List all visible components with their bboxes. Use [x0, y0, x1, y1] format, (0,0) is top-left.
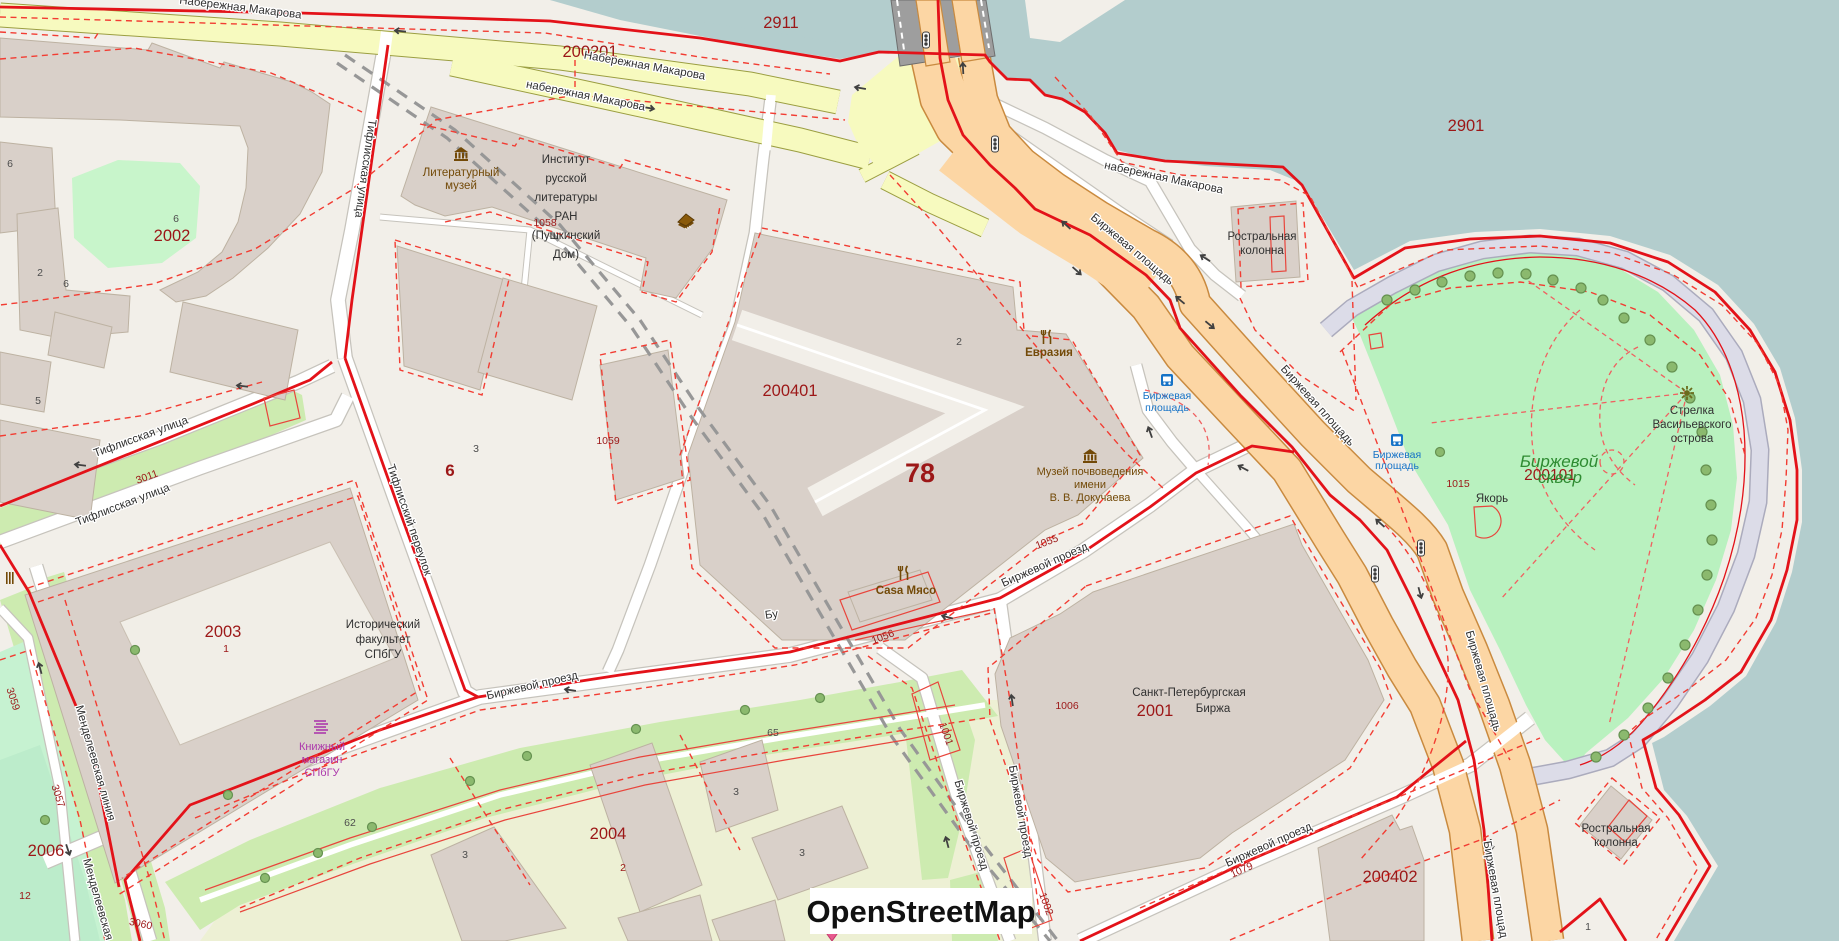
- svg-text:1006: 1006: [1055, 700, 1079, 712]
- svg-text:6: 6: [173, 213, 179, 225]
- svg-text:СПбГУ: СПбГУ: [365, 649, 402, 661]
- svg-text:2: 2: [620, 862, 626, 874]
- svg-text:1059: 1059: [596, 435, 620, 447]
- svg-text:2: 2: [37, 267, 43, 279]
- svg-text:3: 3: [733, 786, 739, 798]
- svg-text:65: 65: [767, 727, 779, 739]
- svg-text:6: 6: [7, 158, 13, 170]
- svg-text:3: 3: [799, 847, 805, 859]
- svg-text:(Пушкинский: (Пушкинский: [532, 230, 601, 242]
- svg-text:литературы: литературы: [535, 192, 598, 204]
- svg-text:В. В. Докучаева: В. В. Докучаева: [1050, 492, 1132, 504]
- svg-text:2911: 2911: [763, 14, 798, 32]
- svg-text:факультет: факультет: [356, 634, 411, 646]
- svg-text:Литературный: Литературный: [423, 167, 500, 179]
- svg-text:Бу: Бу: [764, 608, 779, 622]
- svg-text:имени: имени: [1074, 479, 1106, 491]
- svg-text:2003: 2003: [205, 623, 242, 641]
- svg-text:Евразия: Евразия: [1025, 347, 1073, 359]
- svg-text:2001: 2001: [1137, 702, 1174, 720]
- svg-text:Ростральная: Ростральная: [1581, 823, 1650, 835]
- svg-text:OpenStreetMap: OpenStreetMap: [806, 894, 1035, 929]
- svg-text:русской: русской: [545, 173, 586, 185]
- svg-text:78: 78: [905, 458, 935, 488]
- svg-text:СПбГУ: СПбГУ: [304, 767, 340, 779]
- svg-text:Санкт-Петербургская: Санкт-Петербургская: [1132, 687, 1246, 699]
- svg-text:2901: 2901: [1448, 117, 1485, 135]
- svg-text:12: 12: [19, 890, 31, 902]
- svg-text:6: 6: [63, 278, 69, 290]
- svg-text:Casa Мясо: Casa Мясо: [876, 585, 936, 597]
- svg-text:сквер: сквер: [1538, 468, 1582, 487]
- svg-text:острова: острова: [1671, 433, 1714, 445]
- svg-text:Биржевая: Биржевая: [1143, 390, 1191, 402]
- svg-text:Институт: Институт: [542, 154, 591, 166]
- svg-text:2002: 2002: [154, 227, 191, 245]
- svg-text:1: 1: [223, 643, 229, 655]
- svg-text:1: 1: [1585, 921, 1591, 933]
- svg-text:Исторический: Исторический: [346, 619, 420, 631]
- svg-text:площадь: площадь: [1145, 402, 1189, 414]
- svg-text:Книжный: Книжный: [299, 741, 345, 753]
- svg-text:200402: 200402: [1362, 868, 1417, 886]
- svg-text:площадь: площадь: [1375, 460, 1419, 472]
- svg-text:Музей почвоведения: Музей почвоведения: [1037, 466, 1144, 478]
- svg-text:2004: 2004: [590, 825, 627, 843]
- svg-text:Васильевского: Васильевского: [1653, 419, 1732, 431]
- svg-text:2: 2: [956, 336, 962, 348]
- svg-text:магазин: магазин: [302, 754, 343, 766]
- svg-text:колонна: колонна: [1594, 837, 1638, 849]
- svg-text:Биржа: Биржа: [1196, 703, 1231, 715]
- svg-text:музей: музей: [445, 180, 477, 192]
- svg-text:3: 3: [462, 849, 468, 861]
- svg-text:Стрелка: Стрелка: [1670, 405, 1715, 417]
- svg-text:колонна: колонна: [1240, 245, 1284, 257]
- svg-text:200401: 200401: [762, 382, 817, 400]
- svg-text:Ростральная: Ростральная: [1227, 231, 1296, 243]
- svg-text:Дом): Дом): [553, 249, 579, 261]
- svg-text:РАН: РАН: [555, 211, 578, 223]
- svg-text:2006: 2006: [28, 842, 65, 860]
- svg-text:6: 6: [445, 461, 454, 480]
- svg-text:62: 62: [344, 817, 356, 829]
- svg-text:5: 5: [35, 395, 41, 407]
- svg-text:1015: 1015: [1446, 478, 1470, 490]
- svg-text:1058: 1058: [533, 217, 557, 229]
- svg-text:3: 3: [473, 443, 479, 455]
- svg-text:Якорь: Якорь: [1476, 493, 1508, 505]
